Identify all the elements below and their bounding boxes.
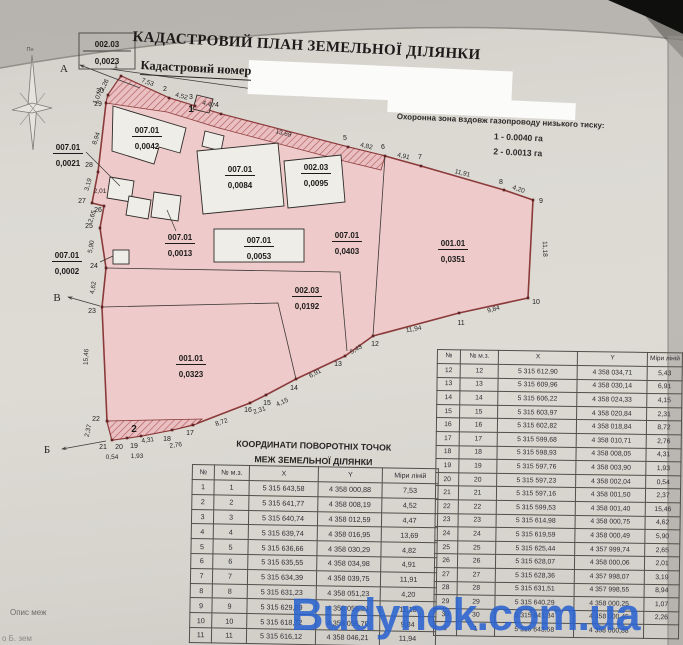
edge-distance-label: 4,15 xyxy=(275,397,290,409)
table-header-cell: № xyxy=(192,465,214,480)
vertex-dot xyxy=(344,355,347,358)
table-cell: 4 358 024,33 xyxy=(577,393,647,408)
vertex-dot xyxy=(120,75,123,78)
area-value-label: 0,0403 xyxy=(335,247,360,256)
vertex-number: 3 xyxy=(189,94,193,101)
direction-letter: Б xyxy=(44,444,50,456)
table-cell: 13 xyxy=(437,377,460,391)
vertex-dot xyxy=(105,102,108,105)
area-value-label: 0,0084 xyxy=(228,181,253,190)
vertex-dot xyxy=(532,199,535,202)
table-cell: 17 xyxy=(436,431,459,445)
table-cell: 27 xyxy=(457,568,495,582)
area-value-label: 0,0002 xyxy=(55,267,80,276)
table-header-cell: Y xyxy=(578,351,648,366)
vertex-dot xyxy=(384,155,387,158)
table-header-cell: Міри ліній xyxy=(647,352,682,366)
watermark: Budynok.com.ua xyxy=(291,589,640,641)
table-cell: 4 358 039,75 xyxy=(316,570,380,586)
table-cell: 5 315 597,23 xyxy=(497,473,576,488)
edge-distance-label: 4,31 xyxy=(141,436,155,445)
table-cell: 18 xyxy=(436,445,459,459)
area-code-label: 002.03 xyxy=(295,286,320,295)
direction-arrow-v xyxy=(68,297,100,306)
table-cell: 1,93 xyxy=(646,462,681,476)
table-cell: 7 xyxy=(212,569,247,584)
boundary-description-note-cut: о Б. зем xyxy=(2,634,32,643)
table-cell: 7,53 xyxy=(382,483,438,499)
table-cell: 0,54 xyxy=(646,475,681,489)
edge-distance-label: 11,18 xyxy=(541,241,549,257)
vertex-number: 11 xyxy=(457,320,464,327)
vertex-number: 12 xyxy=(371,341,379,348)
table-cell: 12 xyxy=(437,364,460,378)
table-cell: 21 xyxy=(458,486,496,500)
table-cell: 5 xyxy=(191,539,213,554)
table-header-cell: X xyxy=(498,350,577,365)
vertex-number: 6 xyxy=(381,144,385,151)
vertex-number: 13 xyxy=(334,361,342,368)
table-cell: 6 xyxy=(191,553,213,568)
edge-distance-label: 1,93 xyxy=(131,453,144,460)
table-cell: 4 357 999,74 xyxy=(575,542,645,557)
table-cell: 19 xyxy=(459,459,497,473)
area-value-label: 0,0095 xyxy=(304,179,329,188)
vertex-number: 23 xyxy=(88,308,96,315)
table-cell: 4 358 018,84 xyxy=(577,420,647,435)
table-cell: 11 xyxy=(189,627,211,642)
edge-distance-label: 2,31 xyxy=(252,405,267,416)
area-value-label: 0,0323 xyxy=(179,370,204,379)
vertex-dot xyxy=(295,378,298,381)
redaction-box xyxy=(248,60,513,105)
edge-distance-label: 2,26 xyxy=(99,78,111,93)
table-cell: 3 xyxy=(191,509,213,524)
table-cell: 5 315 625,44 xyxy=(496,541,575,556)
table-cell: 19 xyxy=(436,459,459,473)
table-cell: 4,62 xyxy=(645,516,680,530)
table-cell: 5 315 598,93 xyxy=(497,446,576,461)
table-cell: 4 358 010,71 xyxy=(576,433,646,448)
table-cell: 5,43 xyxy=(647,366,682,380)
area-value-label: 0,0192 xyxy=(295,302,320,311)
vertex-dot xyxy=(99,227,102,230)
table-cell: 4 358 000,75 xyxy=(575,515,645,530)
table-cell: 5 315 609,96 xyxy=(498,378,577,393)
edge-distance-label: 3,19 xyxy=(84,177,94,191)
building-outline xyxy=(151,192,181,221)
direction-letter: В xyxy=(53,292,60,304)
table-cell: 5 315 641,77 xyxy=(249,495,318,511)
vertex-number: 8 xyxy=(499,179,503,186)
vertex-dot xyxy=(107,94,110,97)
table-cell: 4 xyxy=(191,524,213,539)
zone-marker: 2 xyxy=(131,424,137,435)
table-header-cell: X xyxy=(249,466,318,482)
area-code-label: 002.03 xyxy=(304,163,329,172)
vertex-dot xyxy=(458,312,461,315)
area-value-label: 0,0013 xyxy=(168,249,193,258)
area-value-label: 0,0351 xyxy=(441,255,466,264)
table-cell: 5 315 640,74 xyxy=(248,510,317,526)
table-cell: 4 358 016,95 xyxy=(317,526,381,542)
table-cell: 24 xyxy=(458,527,496,541)
vertex-number: 10 xyxy=(532,299,540,306)
building-outline xyxy=(197,143,284,214)
table-cell: 26 xyxy=(434,554,457,568)
table-cell: 15 xyxy=(460,405,498,419)
vertex-dot xyxy=(91,202,94,205)
vertex-number: 21 xyxy=(99,444,107,451)
table-cell: 4 358 030,14 xyxy=(577,379,647,394)
vertex-dot xyxy=(265,394,268,397)
table-cell: 4 358 030,29 xyxy=(317,541,381,557)
table-cell: 2,01 xyxy=(645,557,680,571)
table-cell: 24 xyxy=(435,527,458,541)
vertex-number: 24 xyxy=(90,263,98,270)
table-cell: 5 315 636,66 xyxy=(248,540,317,556)
table-cell: 5 315 628,07 xyxy=(496,555,575,570)
table-cell: 6 xyxy=(213,554,248,569)
table-cell: 16 xyxy=(459,418,497,432)
table-cell: 4 358 001,40 xyxy=(575,501,645,516)
boundary-description-note: Опис меж xyxy=(10,608,46,617)
vertex-dot xyxy=(220,113,223,116)
table-cell: 2,37 xyxy=(646,489,681,503)
edge-distance-label: 2,01 xyxy=(94,188,107,195)
table-cell: 4 358 000,49 xyxy=(575,529,645,544)
vertex-dot xyxy=(372,335,375,338)
table-cell: 11 xyxy=(211,628,246,643)
table-cell: 14 xyxy=(460,391,498,405)
table-cell: 4,47 xyxy=(381,512,437,528)
vertex-number: 25 xyxy=(85,223,93,230)
table-cell: 9 xyxy=(212,598,247,613)
vertex-dot xyxy=(111,439,114,442)
table-cell: 4 358 034,98 xyxy=(317,556,381,572)
table-cell: 5 315 599,53 xyxy=(496,500,575,515)
table-cell: 6,91 xyxy=(647,380,682,394)
table-cell: 5 315 603,97 xyxy=(498,405,577,420)
table-cell: 4,31 xyxy=(646,448,681,462)
callout-code: 002.03 xyxy=(95,40,120,49)
table-cell: 25 xyxy=(458,541,496,555)
table-cell: 4 358 002,04 xyxy=(576,474,646,489)
vertex-number: 2 xyxy=(163,86,167,93)
vertex-number: 17 xyxy=(186,430,194,437)
edge-distance-label: 8,72 xyxy=(214,417,229,428)
table-cell: 5 315 614,98 xyxy=(496,514,575,529)
table-cell: 23 xyxy=(458,513,496,527)
vertex-dot xyxy=(171,429,174,432)
vertex-number: 4 xyxy=(215,102,219,109)
edge-distance-label: 4,62 xyxy=(89,281,98,295)
area-code-label: 007.01 xyxy=(335,231,360,240)
table-header-cell: № xyxy=(437,350,460,364)
edge-distance-label: 15,46 xyxy=(83,348,91,365)
table-cell: 5 xyxy=(213,539,248,554)
table-cell: 16 xyxy=(436,418,459,432)
vertex-number: 7 xyxy=(418,154,422,161)
table-cell: 2 xyxy=(192,494,214,509)
vertex-dot xyxy=(249,402,252,405)
vertex-dot xyxy=(106,420,109,423)
area-code-label: 007.01 xyxy=(247,236,272,245)
table-cell: 7 xyxy=(190,568,212,583)
table-cell: 5 315 634,39 xyxy=(247,569,316,585)
table-cell: 2,26 xyxy=(644,611,679,625)
table-cell: 27 xyxy=(434,567,457,581)
direction-arrow-a xyxy=(80,65,140,88)
table-cell: 23 xyxy=(435,513,458,527)
compass-north-label: Пн xyxy=(27,47,34,53)
vertex-dot xyxy=(126,437,129,440)
table-cell: 2,65 xyxy=(645,543,680,557)
area-code-label: 007.01 xyxy=(56,143,81,152)
table-cell: 4 358 000,88 xyxy=(318,482,382,498)
scanned-cadastral-plan-page: Пн 002.03 0,0023 12345678910111213141516… xyxy=(0,0,683,645)
table-cell: 8,94 xyxy=(644,584,679,598)
table-cell: 5,90 xyxy=(645,530,680,544)
area-code-label: 001.01 xyxy=(179,354,204,363)
table-cell: 5 315 602,82 xyxy=(497,419,576,434)
table-cell: 4,52 xyxy=(382,498,438,514)
table-cell: 4,91 xyxy=(381,557,437,573)
table-cell: 4 358 008,19 xyxy=(318,497,382,513)
vertex-dot xyxy=(97,171,100,174)
table-cell: 4 358 001,50 xyxy=(576,488,646,503)
table-cell: 4 358 008,05 xyxy=(576,447,646,462)
vertex-dot xyxy=(105,267,108,270)
table-cell: 5 315 635,55 xyxy=(248,554,317,570)
vertex-number: 20 xyxy=(115,444,123,451)
table-cell: 4 358 000,06 xyxy=(575,556,645,571)
table-cell: 2,76 xyxy=(646,434,681,448)
table-cell: 11,91 xyxy=(380,572,436,588)
table-cell: 4 358 012,59 xyxy=(317,511,381,527)
table-cell: 4 357 998,07 xyxy=(575,569,645,584)
vertex-number: 14 xyxy=(290,385,298,392)
table-cell: 26 xyxy=(457,554,495,568)
vertex-dot xyxy=(192,424,195,427)
table-cell: 1,07 xyxy=(644,598,679,612)
building-outline xyxy=(113,250,129,264)
table-header-cell: Міри ліній xyxy=(382,468,438,484)
vertex-dot xyxy=(503,189,506,192)
vertex-dot xyxy=(194,105,197,108)
direction-letter: А xyxy=(60,63,68,75)
vertex-number: 16 xyxy=(244,407,252,414)
table-cell: 4 358 034,71 xyxy=(577,365,647,380)
table-cell: 20 xyxy=(459,473,497,487)
table-cell xyxy=(644,625,679,639)
table-cell: 17 xyxy=(459,432,497,446)
table-cell: 5 315 619,59 xyxy=(496,527,575,542)
table-cell: 5 315 597,76 xyxy=(497,460,576,475)
table-cell: 15,46 xyxy=(645,502,680,516)
vertex-dot xyxy=(101,306,104,309)
table-cell: 5 315 639,74 xyxy=(248,525,317,541)
area-value-label: 0,0053 xyxy=(247,252,272,261)
table-cell: 18 xyxy=(459,445,497,459)
table-cell: 4 xyxy=(213,524,248,539)
table-cell: 12 xyxy=(460,364,498,378)
table-header-cell: № м.з. xyxy=(214,465,249,481)
table-cell: 9 xyxy=(190,598,212,613)
table-header-cell: Y xyxy=(318,467,382,483)
table-cell: 5 315 597,16 xyxy=(497,487,576,502)
table-cell: 15 xyxy=(437,404,460,418)
area-code-label: 001.01 xyxy=(441,239,466,248)
table-cell: 3,19 xyxy=(644,570,679,584)
table-header-cell: № м.з. xyxy=(460,350,498,365)
table-cell: 4 358 020,84 xyxy=(577,406,647,421)
table-cell: 21 xyxy=(435,486,458,500)
edge-distance-label: 2,76 xyxy=(169,441,183,450)
table-cell: 4,15 xyxy=(647,394,682,408)
edge-distance-label: 0,54 xyxy=(106,454,119,461)
table-cell: 8 xyxy=(212,583,247,598)
table-cell: 5 315 606,22 xyxy=(498,392,577,407)
table-cell: 14 xyxy=(437,391,460,405)
table-cell: 22 xyxy=(458,500,496,514)
table-cell: 5 315 628,36 xyxy=(495,568,574,583)
table-cell: 5 315 643,58 xyxy=(249,481,318,497)
table-cell: 10 xyxy=(212,613,247,628)
table-cell: 4,82 xyxy=(381,542,437,558)
vertex-dot xyxy=(420,165,423,168)
table-cell: 2,31 xyxy=(647,407,682,421)
table-cell: 3 xyxy=(213,509,248,524)
area-code-label: 007.01 xyxy=(55,251,80,260)
table-cell: 8,72 xyxy=(646,421,681,435)
area-value-label: 0,0021 xyxy=(56,159,81,168)
table-cell: 13 xyxy=(460,377,498,391)
edge-distance-label: 5,90 xyxy=(87,240,96,254)
table-cell: 1 xyxy=(214,480,249,495)
table-cell: 5 315 599,68 xyxy=(497,432,576,447)
table-cell: 8 xyxy=(190,583,212,598)
vertex-dot xyxy=(347,146,350,149)
table-cell: 5 315 612,90 xyxy=(498,364,577,379)
vertex-number: 19 xyxy=(130,443,138,450)
table-cell: 20 xyxy=(436,472,459,486)
table-cell: 10 xyxy=(190,613,212,628)
edge-distance-label: 2,65 xyxy=(87,209,98,224)
vertex-number: 9 xyxy=(539,198,543,205)
area-code-label: 007.01 xyxy=(228,165,253,174)
vertex-dot xyxy=(103,205,106,208)
building-outline xyxy=(126,196,151,219)
table-cell: 25 xyxy=(435,540,458,554)
edge-distance-label: 11,94 xyxy=(405,325,422,335)
vertex-dot xyxy=(527,297,530,300)
edge-distance-label: 2,37 xyxy=(84,423,94,437)
table-cell: 13,69 xyxy=(381,527,437,543)
table-cell: 22 xyxy=(435,499,458,513)
vertex-number: 22 xyxy=(92,416,100,423)
area-code-label: 007.01 xyxy=(135,126,160,135)
table-cell: 1 xyxy=(192,480,214,495)
vertex-number: 5 xyxy=(343,135,347,142)
table-cell: 2 xyxy=(214,495,249,510)
vertex-dot xyxy=(168,97,171,100)
vertex-number: 28 xyxy=(85,162,93,169)
area-code-label: 007.01 xyxy=(168,233,193,242)
table-cell: 4 358 003,90 xyxy=(576,461,646,476)
vertex-number: 1 xyxy=(114,63,118,70)
vertex-number: 27 xyxy=(78,198,86,205)
area-value-label: 0,0042 xyxy=(135,142,160,151)
zone-marker: 1 xyxy=(188,104,194,115)
